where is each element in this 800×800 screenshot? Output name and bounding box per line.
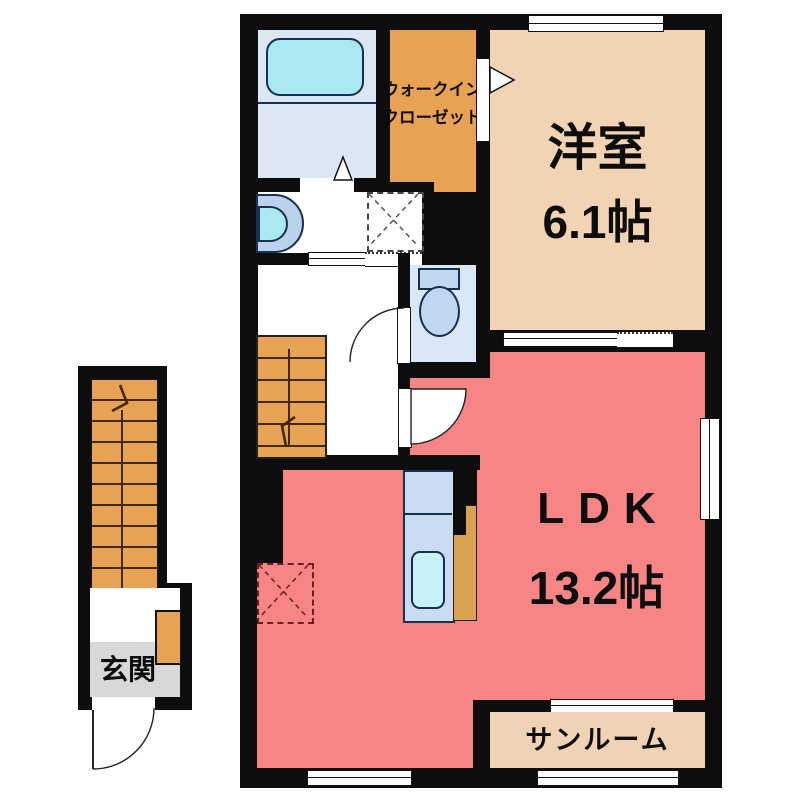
western-room (490, 30, 705, 330)
ldk-left-pillar-wall (240, 462, 283, 563)
kitchen-counter-line (404, 513, 452, 515)
washing-machine-space-icon (367, 192, 424, 252)
closet-door-leaf (476, 58, 490, 142)
walk-in-closet-label-line2: クローゼット (378, 104, 486, 132)
ldk-bottom-window (307, 770, 412, 786)
bathtub-icon (266, 38, 364, 96)
bath-door-opening (300, 178, 354, 192)
sunroom-left-wall (473, 700, 490, 788)
kitchen-sink-icon (411, 551, 445, 609)
western-ldk-sliding-door-pocket (617, 332, 673, 348)
walk-in-closet-label-line1: ウォークイン (378, 76, 486, 104)
western-room-top-window (528, 15, 664, 32)
ldk-right-window (700, 418, 720, 520)
sunroom-top-window (550, 699, 674, 713)
ldk-label: LDK (488, 484, 705, 534)
ldk-size: 13.2帖 (488, 552, 705, 618)
wic-washroom-wall (367, 182, 434, 192)
walk-in-closet-label: ウォークイン クローゼット (378, 76, 486, 132)
bath-partition-line (258, 102, 376, 104)
exterior-stairs-centerline (121, 410, 123, 588)
kitchen-wall-notch (453, 505, 466, 535)
washroom-sliding-door (308, 252, 367, 266)
sunroom-bottom-window (537, 770, 679, 786)
interior-staircase (256, 335, 327, 459)
ldk-door-leaf (398, 388, 412, 448)
refrigerator-space-icon (257, 563, 314, 624)
entrance-door-arc (93, 708, 154, 769)
kitchen-wall-stub (453, 470, 477, 505)
entrance-door-opening (92, 697, 155, 710)
western-room-label: 洋室 (490, 108, 705, 180)
toilet-icon (419, 286, 460, 337)
floor-plan: 玄関 ウォークイン クローゼット 洋室 6.1帖 LDK 13.2帖 (0, 0, 800, 800)
exterior-staircase (90, 378, 159, 592)
wic-toilet-corner-wall (422, 192, 476, 265)
western-room-size: 6.1帖 (490, 186, 705, 252)
western-ldk-sliding-door (503, 332, 619, 347)
sunroom-label: サンルーム (490, 712, 705, 768)
entrance-label: 玄関 (88, 642, 168, 697)
toilet-bottom-wall (398, 362, 488, 378)
toilet-door-leaf (397, 307, 411, 364)
washroom-bottom-wall (258, 253, 310, 265)
